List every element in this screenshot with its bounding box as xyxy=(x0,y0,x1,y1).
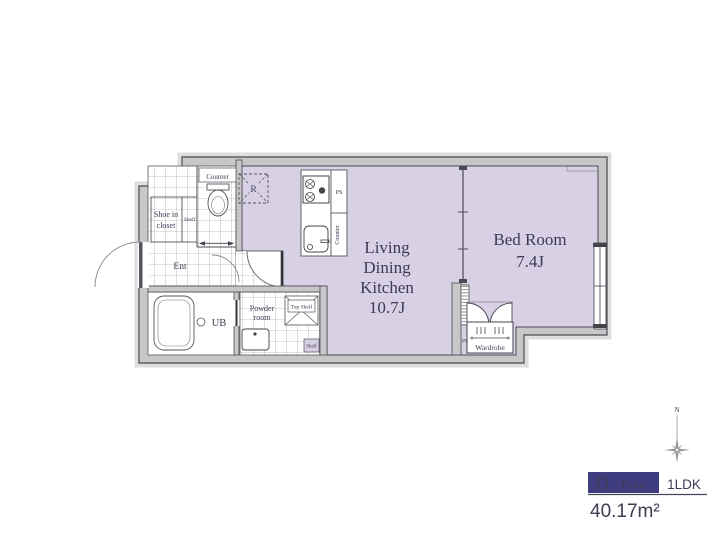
room-label-ldk-3: Kitchen xyxy=(360,278,414,297)
room-label-bedroom-size: 7.4J xyxy=(516,252,544,271)
vanity-sink-icon xyxy=(242,329,269,350)
label-fridge: R xyxy=(250,185,257,195)
room-label-ldk-1: Living xyxy=(364,238,410,257)
floorplan-page: Counter Shoe in closet Shelf Ent R PS Co… xyxy=(0,0,720,540)
label-entry-shelf: Shelf xyxy=(184,216,196,223)
label-ps-kitchen: PS xyxy=(336,190,343,196)
layout-label: 1LDK xyxy=(667,477,701,492)
label-powder-1: Powder xyxy=(250,304,275,313)
label-wardrobe: Wardrobe xyxy=(475,343,505,352)
stove-icon xyxy=(303,176,329,203)
window-icon xyxy=(593,243,607,329)
floor-plan: Counter Shoe in closet Shelf Ent R PS Co… xyxy=(0,0,720,540)
room-label-ldk-size: 10.7J xyxy=(369,298,406,317)
label-counter-kitchen: Counter xyxy=(335,225,341,244)
label-ent: Ent xyxy=(173,262,187,272)
room-label-bedroom: Bed Room xyxy=(493,230,566,249)
toilet-icon xyxy=(207,184,229,216)
legend: D Type 1LDK 40.17m² xyxy=(588,472,707,522)
label-shelf-powder: Shelf xyxy=(306,345,317,350)
label-ps-wardrobe: PS xyxy=(462,339,468,345)
label-shoe-closet-1: Shoe in xyxy=(154,210,178,219)
compass-icon: N xyxy=(664,406,690,463)
area-label: 40.17m² xyxy=(590,501,660,522)
type-word: Type xyxy=(620,479,646,491)
label-powder-2: room xyxy=(254,313,272,322)
type-letter: D xyxy=(596,473,609,493)
label-counter-top: Counter xyxy=(206,173,229,181)
entry-door xyxy=(95,242,149,288)
label-top-shelf: Top Shelf xyxy=(291,304,313,311)
washer-space-icon xyxy=(285,296,318,325)
label-ub: UB xyxy=(212,318,227,329)
label-shoe-closet-2: closet xyxy=(157,221,176,230)
svg-text:N: N xyxy=(674,406,679,414)
kitchen-sink-icon xyxy=(304,226,329,252)
room-label-ldk-2: Dining xyxy=(363,258,411,277)
